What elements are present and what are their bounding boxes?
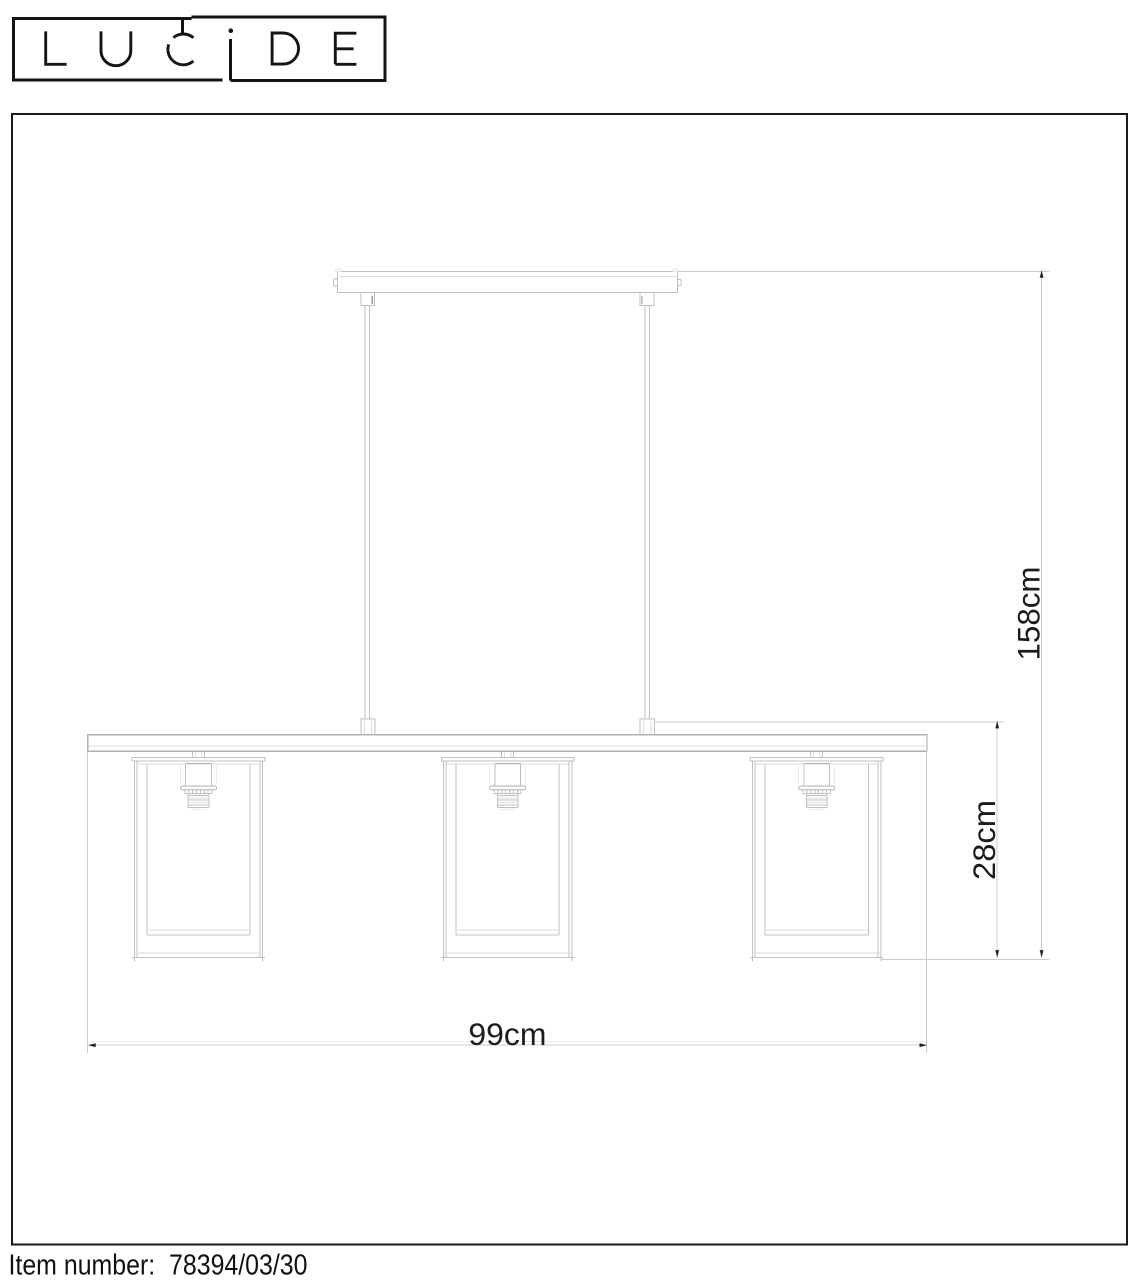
svg-text:158cm: 158cm [1011, 567, 1047, 661]
svg-text:Item number: 78394/03/30: Item number: 78394/03/30 [9, 1249, 308, 1280]
svg-text:99cm: 99cm [468, 1016, 546, 1052]
svg-text:28cm: 28cm [966, 800, 1002, 880]
